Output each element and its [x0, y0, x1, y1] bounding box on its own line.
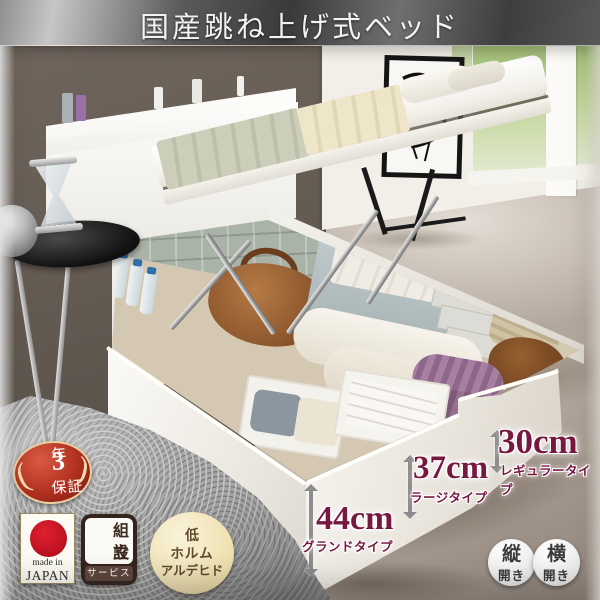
cosmetic-stick: [237, 76, 244, 96]
made-in-japan-badge: made in JAPAN: [20, 513, 75, 584]
japan-text: JAPAN: [21, 568, 74, 584]
measurement-44cm: 44cm: [316, 500, 393, 538]
type-label-large: ラージタイプ: [410, 487, 488, 506]
cosmetic-bottle: [76, 95, 86, 121]
height-arrow-44cm: [309, 488, 313, 572]
page-title: 国産跳ね上げ式ベッド: [0, 4, 600, 46]
service-label: サービス: [85, 566, 133, 581]
cosmetic-tube: [154, 87, 163, 109]
formaldehyde-line2: ホルム: [150, 542, 234, 562]
header-band: 国産跳ね上げ式ベッド: [0, 0, 600, 46]
vertical-open-option[interactable]: 縦 開き: [488, 539, 535, 586]
hourglass-icon: [27, 156, 85, 234]
photo-edge-left: [0, 46, 15, 600]
low-formaldehyde-badge: 低 ホルム アルデヒド: [150, 512, 234, 594]
spray-bottle: [192, 79, 202, 103]
assembly-service-badge: 組立 設置 サービス: [81, 514, 137, 585]
formaldehyde-line3: アルデヒド: [150, 560, 234, 579]
warranty-unit: 年: [51, 448, 67, 464]
cosmetic-bottle: [62, 93, 73, 123]
horizontal-open-char: 横: [533, 545, 580, 564]
assembly-text: 組立 設置: [85, 518, 133, 564]
horizontal-open-suffix: 開き: [533, 565, 580, 584]
photo-edge-right: [585, 46, 600, 600]
product-banner: 国産跳ね上げ式ベッド: [0, 0, 600, 600]
made-in-text: made in: [21, 558, 74, 568]
measurement-30cm: 30cm: [498, 422, 578, 462]
vertical-open-char: 縦: [488, 545, 535, 564]
hourglass-glass: [35, 164, 76, 227]
japan-flag-icon: [30, 520, 67, 557]
type-label-grand: グランドタイプ: [302, 536, 393, 555]
vertical-open-suffix: 開き: [488, 565, 535, 584]
horizontal-open-option[interactable]: 横 開き: [533, 539, 580, 586]
measurement-37cm: 37cm: [413, 450, 488, 487]
